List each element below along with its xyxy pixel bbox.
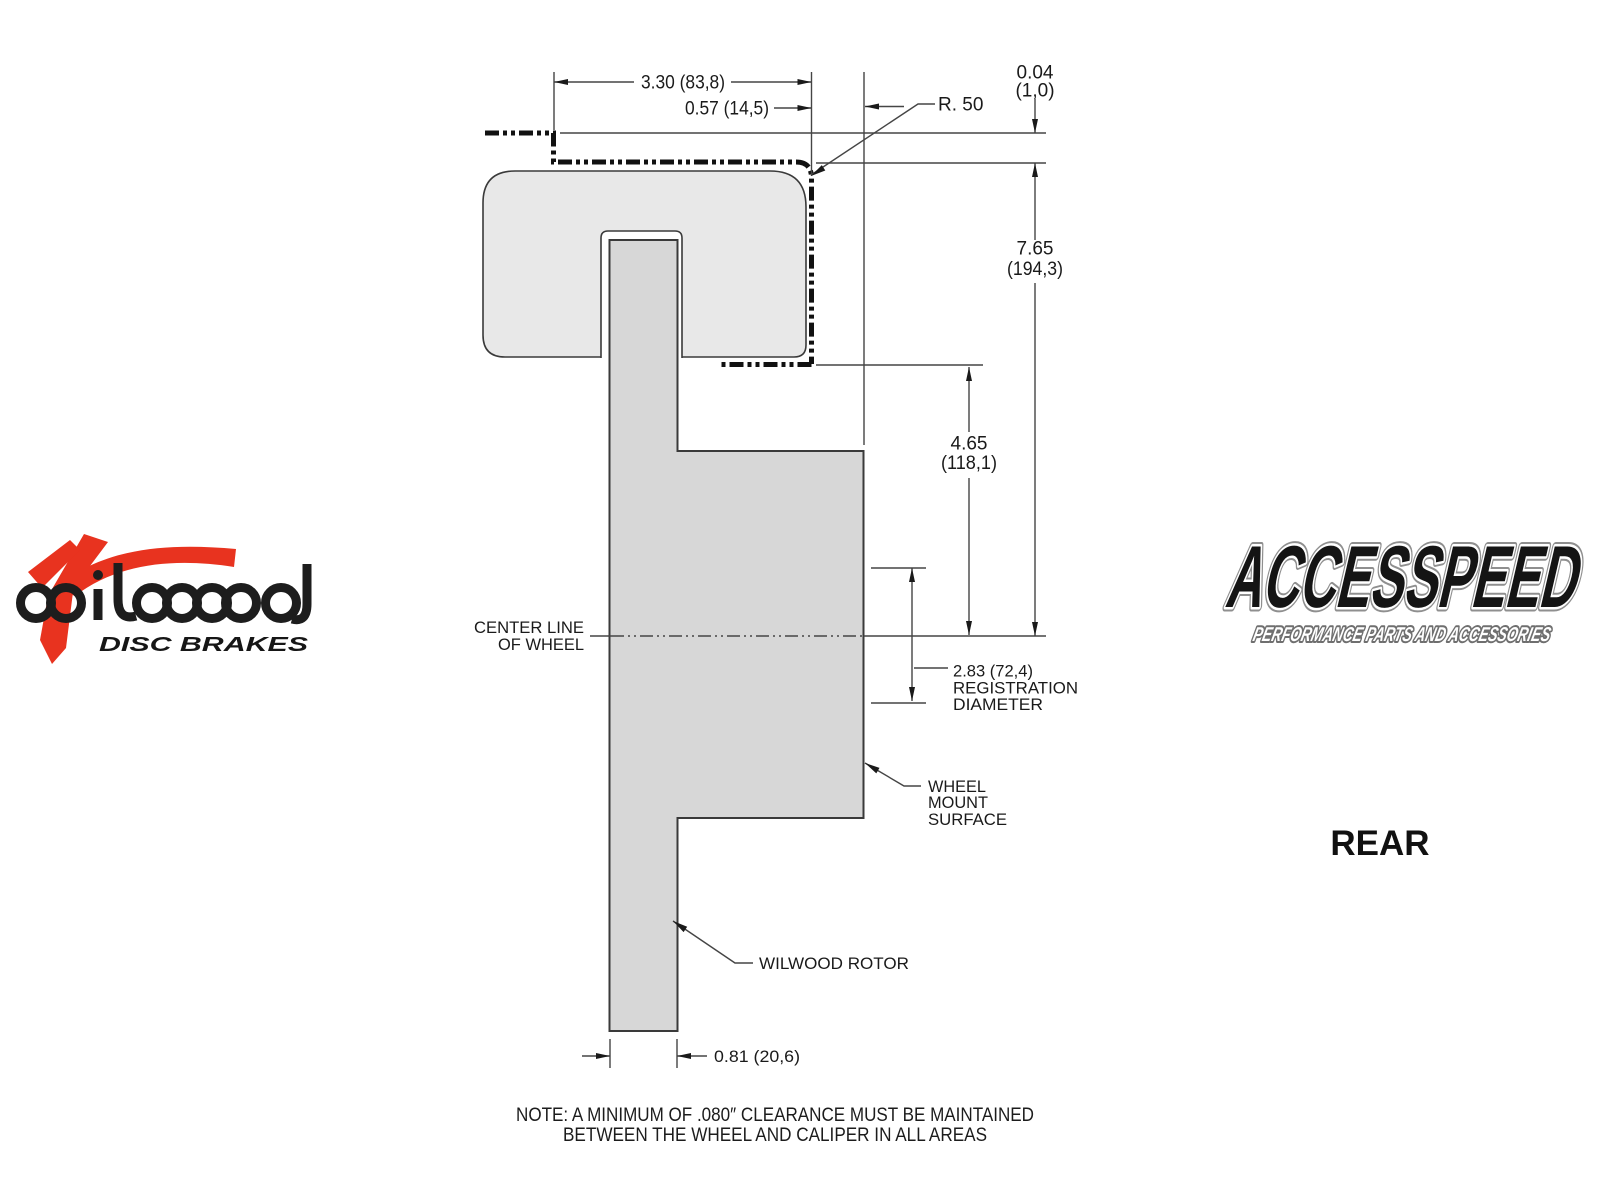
svg-text:REAR: REAR bbox=[1330, 824, 1429, 863]
svg-text:DIAMETER: DIAMETER bbox=[953, 695, 1043, 714]
svg-text:4.65: 4.65 bbox=[951, 434, 988, 455]
svg-text:7.65: 7.65 bbox=[1017, 239, 1054, 260]
svg-text:DISC BRAKES: DISC BRAKES bbox=[99, 634, 309, 656]
svg-text:BETWEEN THE WHEEL AND CALIPER: BETWEEN THE WHEEL AND CALIPER IN ALL ARE… bbox=[563, 1125, 987, 1146]
svg-text:ACCESSPEED: ACCESSPEED bbox=[1220, 527, 1593, 626]
svg-text:(194,3): (194,3) bbox=[1007, 259, 1063, 280]
svg-text:PERFORMANCE PARTS AND ACCESSOR: PERFORMANCE PARTS AND ACCESSORIES bbox=[1251, 624, 1553, 646]
svg-text:(1,0): (1,0) bbox=[1015, 81, 1054, 102]
svg-text:0.81 (20,6): 0.81 (20,6) bbox=[714, 1047, 800, 1066]
svg-text:OF WHEEL: OF WHEEL bbox=[498, 635, 584, 654]
svg-text:0.57 (14,5): 0.57 (14,5) bbox=[685, 99, 769, 120]
svg-text:3.30 (83,8): 3.30 (83,8) bbox=[641, 73, 725, 94]
svg-text:R. 50: R. 50 bbox=[938, 95, 983, 116]
svg-text:NOTE: A MINIMUM OF .080″ CLEAR: NOTE: A MINIMUM OF .080″ CLEARANCE MUST … bbox=[516, 1105, 1034, 1126]
svg-text:SURFACE: SURFACE bbox=[928, 810, 1007, 829]
svg-text:(118,1): (118,1) bbox=[941, 453, 997, 474]
svg-text:WILWOOD ROTOR: WILWOOD ROTOR bbox=[759, 954, 909, 973]
